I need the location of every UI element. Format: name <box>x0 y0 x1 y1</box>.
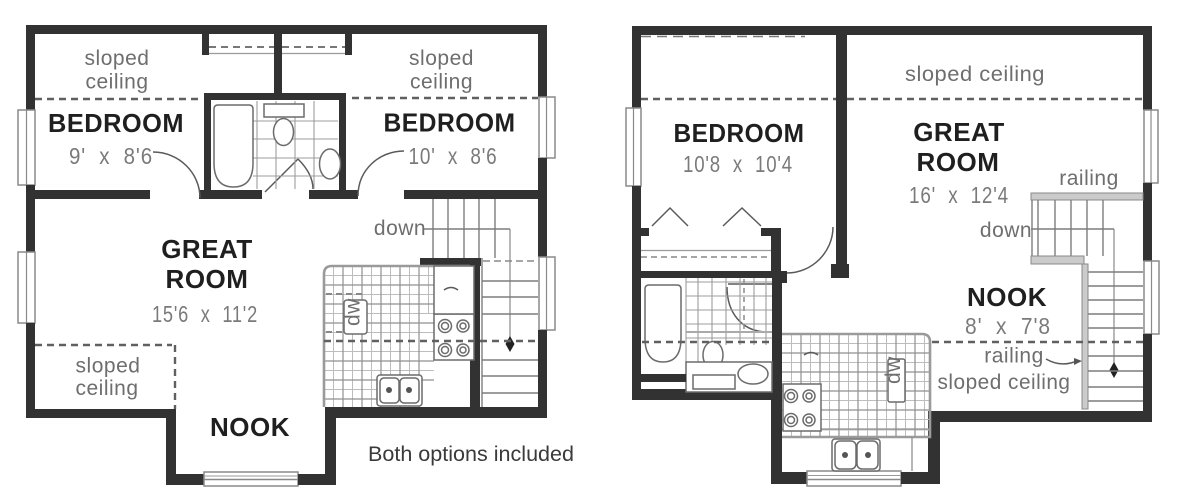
svg-text:ceiling: ceiling <box>410 71 473 94</box>
svg-text:NOOK: NOOK <box>967 282 1047 312</box>
svg-text:sloped ceiling: sloped ceiling <box>905 63 1045 86</box>
svg-text:ceiling: ceiling <box>75 377 138 400</box>
svg-text:sloped: sloped <box>85 47 150 70</box>
svg-text:dw: dw <box>342 298 365 326</box>
svg-text:ceiling: ceiling <box>85 71 148 94</box>
svg-text:BEDROOM: BEDROOM <box>384 108 516 138</box>
svg-text:8' x 7'8: 8' x 7'8 <box>965 313 1051 339</box>
svg-text:15'6 x 11'2: 15'6 x 11'2 <box>152 301 258 327</box>
svg-text:NOOK: NOOK <box>210 412 290 442</box>
svg-text:10' x 8'6: 10' x 8'6 <box>409 143 498 169</box>
svg-text:down: down <box>374 217 426 240</box>
svg-text:dw: dw <box>882 356 905 384</box>
svg-text:9' x 8'6: 9' x 8'6 <box>69 143 153 169</box>
svg-text:sloped ceiling: sloped ceiling <box>938 371 1071 394</box>
svg-text:GREAT: GREAT <box>913 117 1005 147</box>
svg-text:10'8 x 10'4: 10'8 x 10'4 <box>683 151 793 177</box>
svg-text:BEDROOM: BEDROOM <box>674 118 805 148</box>
svg-text:railing: railing <box>1059 167 1119 190</box>
svg-text:Both options included: Both options included <box>368 442 574 466</box>
svg-text:16' x 12'4: 16' x 12'4 <box>909 182 1009 208</box>
svg-text:ROOM: ROOM <box>166 264 249 294</box>
svg-text:sloped: sloped <box>76 355 141 378</box>
svg-text:GREAT: GREAT <box>161 234 253 264</box>
svg-text:sloped: sloped <box>409 47 474 70</box>
svg-text:ROOM: ROOM <box>917 147 1000 177</box>
svg-text:railing: railing <box>984 345 1044 368</box>
svg-text:BEDROOM: BEDROOM <box>48 108 184 138</box>
svg-text:down: down <box>980 219 1032 242</box>
